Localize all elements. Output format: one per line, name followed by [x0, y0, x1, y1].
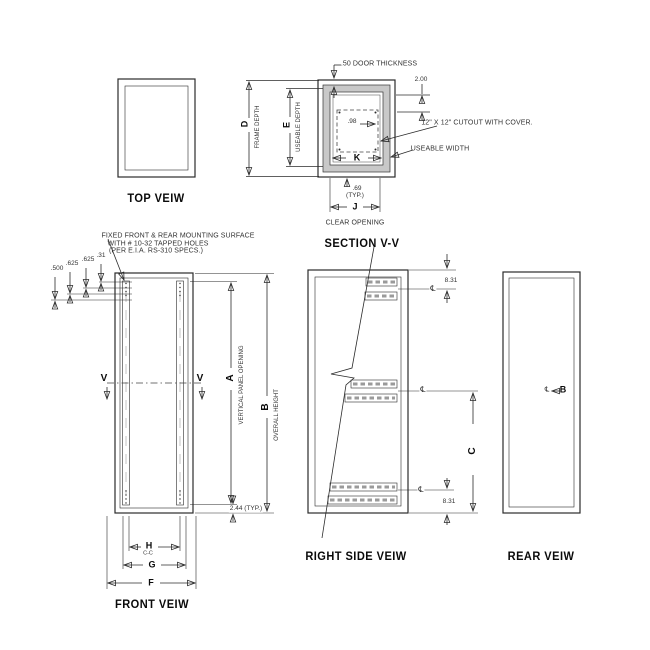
overall-height-label: OVERALL HEIGHT — [274, 389, 280, 441]
dim-a-letter: A — [226, 373, 236, 382]
useable-depth-label: USEABLE DEPTH — [296, 102, 302, 152]
section-vv-linework — [318, 65, 437, 212]
dim-831-bottom-label: 8.31 — [443, 499, 456, 506]
rear-view-linework — [503, 272, 580, 513]
dim-244-typ-label: 2.44 (TYP.) — [229, 506, 263, 513]
dim-g-letter: G — [148, 561, 155, 570]
engineering-drawing-sheet: TOP VEIW SECTION V-V FRONT VEIW RIGHT SI… — [0, 0, 650, 650]
mounting-note-line2: WITH # 10-32 TAPPED HOLES — [107, 241, 208, 248]
dim-625-a-label: .625 — [66, 261, 79, 268]
dim-e-letter: E — [283, 121, 292, 129]
top-view-title: TOP VEIW — [127, 192, 184, 204]
section-cut-v-right: V — [197, 374, 204, 384]
dim-b-letter: B — [261, 402, 271, 411]
centerline-icon: ℄ — [545, 387, 550, 394]
dim-2-00-label: 2.00 — [415, 77, 428, 84]
centerline-icon: ℄ — [417, 486, 424, 494]
clear-opening-label: CLEAR OPENING — [326, 220, 385, 227]
dim-831-top-label: 8.31 — [445, 278, 458, 285]
mounting-note-line1: FIXED FRONT & REAR MOUNTING SURFACE — [101, 233, 254, 240]
dim-625-b-label: .625 — [82, 257, 95, 264]
rear-dim-b-letter: B — [560, 386, 567, 395]
dim-d-letter: D — [241, 120, 250, 129]
dim-k-letter: K — [354, 154, 361, 163]
dim-31-label: .31 — [96, 253, 105, 260]
section-vv-title: SECTION V-V — [325, 237, 400, 249]
front-view-title: FRONT VEIW — [115, 598, 189, 610]
useable-width-label: USEABLE WIDTH — [411, 146, 469, 153]
centerline-icon: ℄ — [429, 285, 436, 293]
dim-j-letter: J — [352, 203, 357, 212]
dim-69-typ-label: (TYP.) — [346, 193, 364, 200]
right-side-view-title: RIGHT SIDE VEIW — [305, 550, 406, 562]
dim-98-label: .98 — [347, 119, 356, 126]
cutout-note-label: 12" X 12" CUTOUT WITH COVER. — [421, 120, 532, 127]
frame-depth-label: FRAME DEPTH — [255, 105, 261, 148]
dim-h-letter: H — [146, 542, 153, 551]
dim-500-label: .500 — [51, 266, 64, 273]
dim-f-letter: F — [148, 579, 154, 588]
section-cut-v-left: V — [101, 374, 108, 384]
mounting-note-line3: (PER E.I.A. RS-310 SPECS.) — [109, 248, 203, 255]
right-side-view-linework — [308, 247, 478, 538]
top-view-linework — [118, 79, 195, 177]
door-thickness-label: .50 DOOR THICKNESS — [341, 61, 417, 68]
dim-c-letter: C — [468, 446, 478, 455]
vertical-panel-opening-label: VERTICAL PANEL OPENING — [239, 345, 245, 424]
center-to-center-label: C-C — [143, 551, 153, 557]
centerline-icon: ℄ — [419, 386, 426, 394]
rear-view-title: REAR VEIW — [508, 550, 575, 562]
